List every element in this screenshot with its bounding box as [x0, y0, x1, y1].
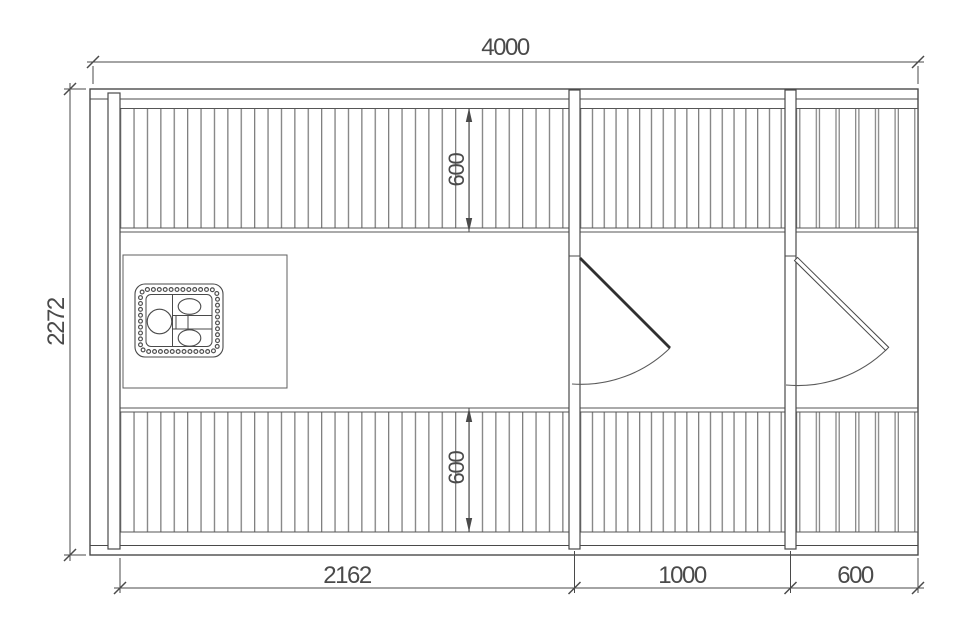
bottom-slats-left-segment — [120, 412, 569, 532]
dim-overall-width-label: 4000 — [481, 34, 530, 61]
bottom-slats-middle-segment — [580, 412, 785, 532]
floor-plan-drawing: 4000 2272 600 600 2162 1000 600 — [0, 0, 960, 636]
dim-overall-depth-label: 2272 — [43, 297, 70, 346]
top-slats-left-segment — [120, 108, 569, 228]
partition-post-2 — [785, 90, 796, 549]
partition-post-1 — [569, 90, 580, 549]
heater-control-box — [176, 316, 188, 330]
sauna-heater — [135, 284, 223, 357]
bottom-slats-right-segment — [796, 412, 918, 532]
bottom-bench-slats — [120, 408, 918, 532]
top-slats-right-segment — [796, 108, 918, 228]
floor-plan-canvas: 4000 2272 600 600 2162 1000 600 — [0, 0, 960, 636]
dim-section-left-label: 2162 — [323, 562, 372, 589]
dim-bottom-bench-label: 600 — [444, 450, 469, 484]
dim-section-right-label: 600 — [837, 562, 874, 589]
top-bench-slats — [120, 108, 918, 232]
dim-top-bench-label: 600 — [444, 152, 469, 186]
dim-section-middle-label: 1000 — [658, 562, 707, 589]
left-wall-plank — [108, 93, 120, 549]
top-slats-middle-segment — [580, 108, 785, 228]
